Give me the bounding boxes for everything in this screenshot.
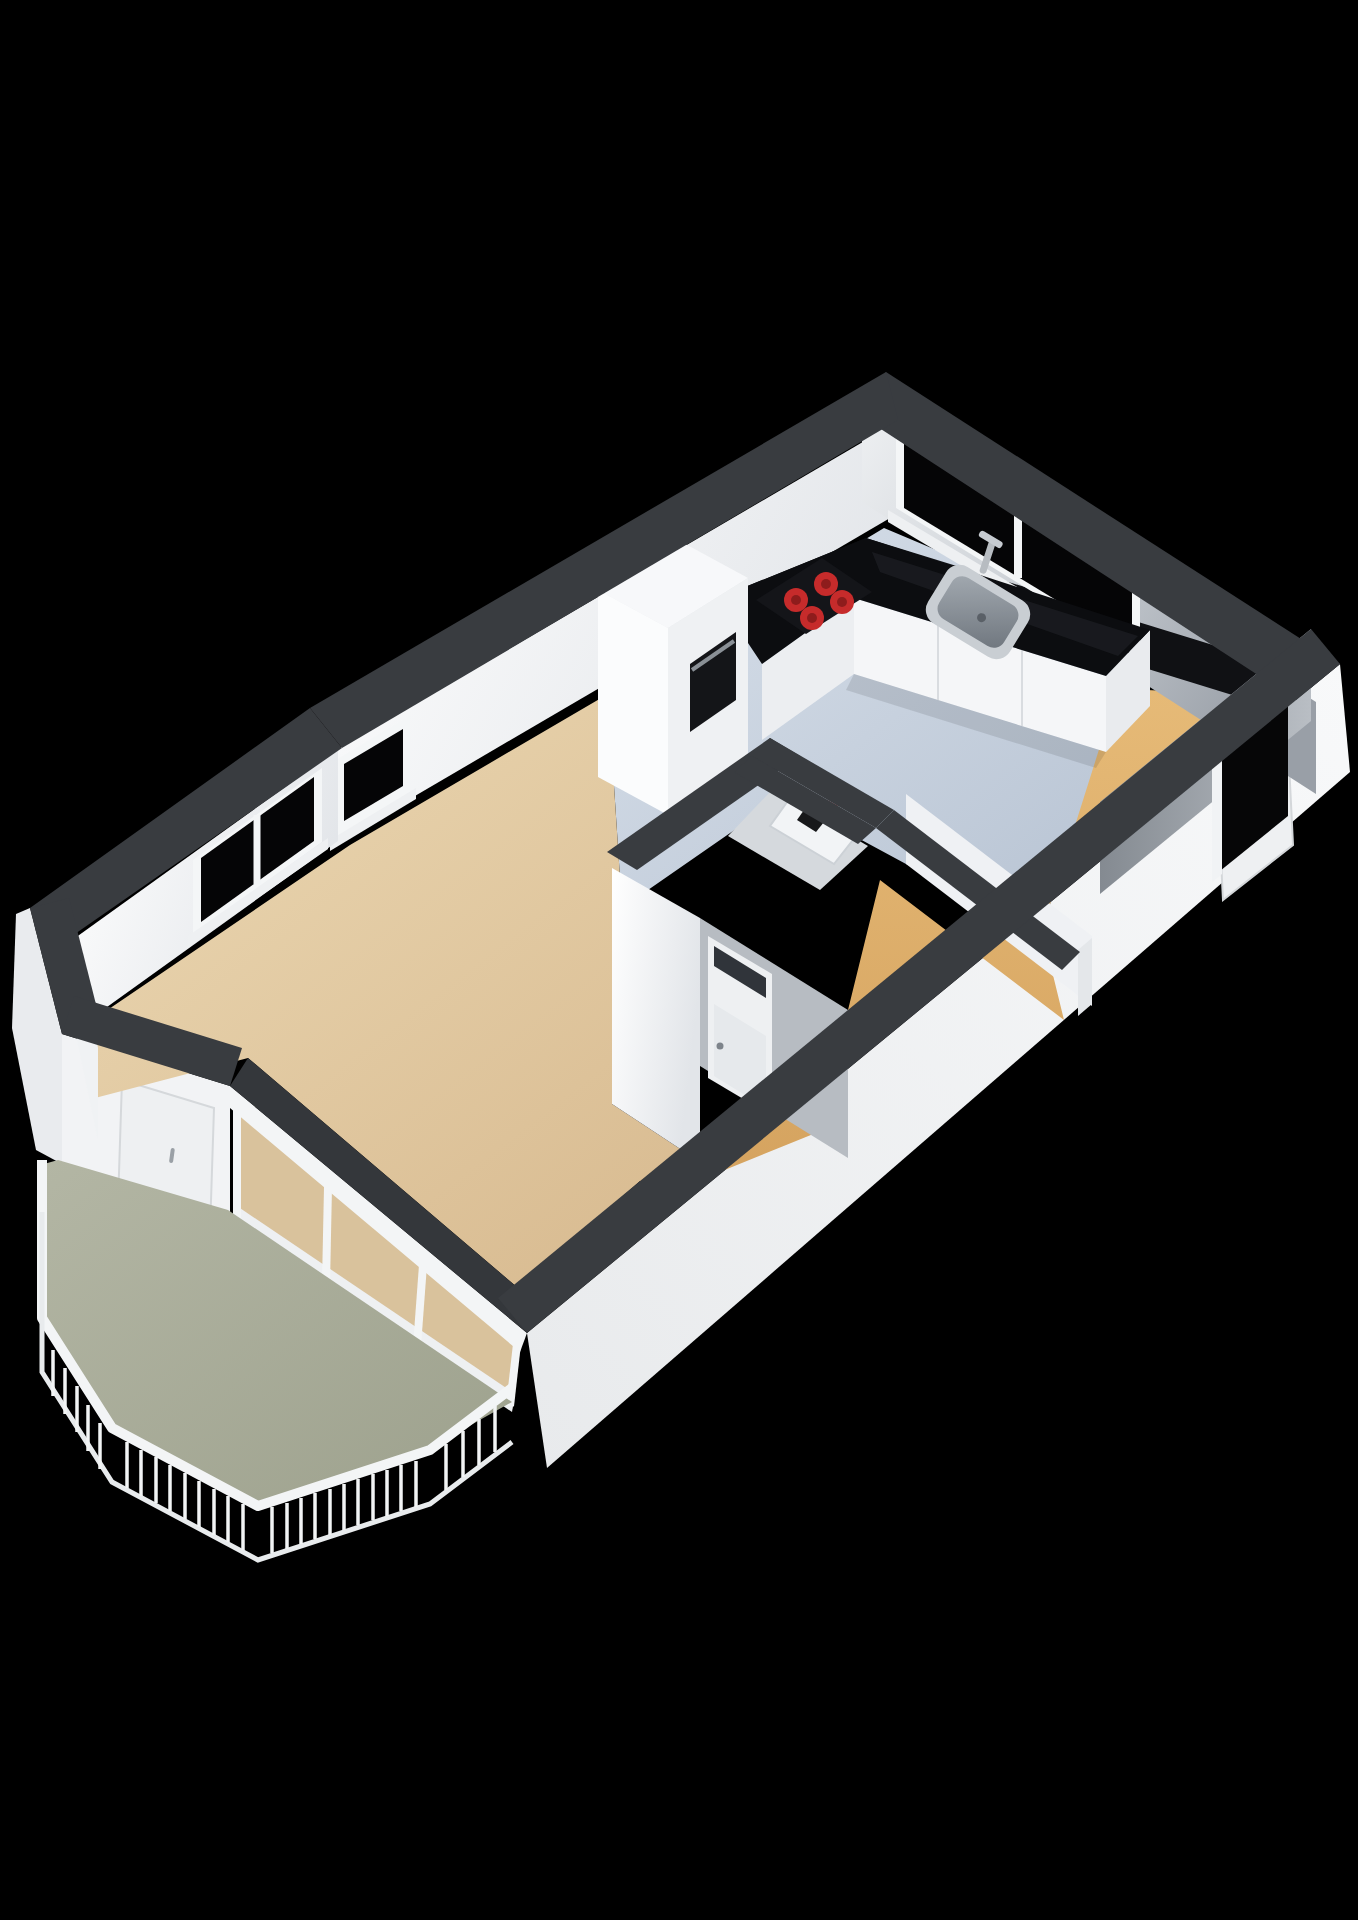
burner-center bbox=[821, 579, 831, 589]
tall-cabinet-left-face bbox=[598, 590, 668, 815]
glass-mullion bbox=[326, 1187, 328, 1284]
burner-center bbox=[791, 595, 801, 605]
bathroom-door-handle bbox=[717, 1043, 724, 1050]
partition-arm-end bbox=[1078, 938, 1092, 1016]
floorplan-render bbox=[0, 0, 1358, 1920]
floorplan-3d-canvas[interactable] bbox=[0, 0, 1358, 1920]
burner-center bbox=[837, 597, 847, 607]
burner-center bbox=[807, 613, 817, 623]
